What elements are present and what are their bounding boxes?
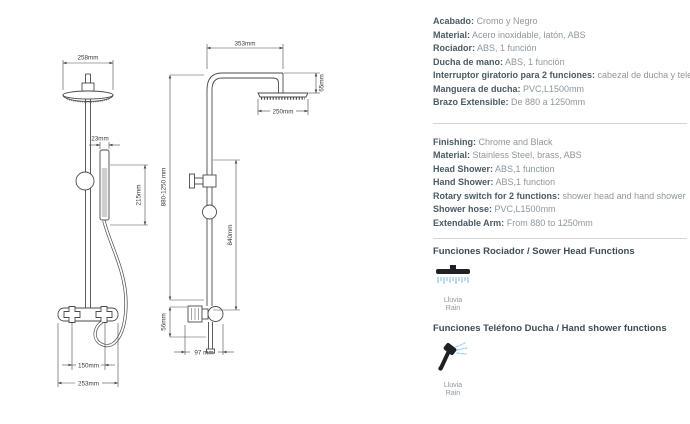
dim-head-diameter: 250mm xyxy=(273,109,294,116)
valve-ball-side xyxy=(208,307,223,322)
spec-label: Finishing: xyxy=(433,137,476,147)
spec-value: Stainless Steel, brass, ABS xyxy=(473,150,582,160)
spec-label: Shower hose: xyxy=(433,204,492,214)
rain-caption: Lluvia Rain xyxy=(433,297,473,312)
spec-row: Shower hose: PVC,L1500mm xyxy=(433,203,687,217)
spec-label: Ducha de mano: xyxy=(433,57,503,67)
dim-hand-shower-height: 215mm xyxy=(136,185,143,206)
spec-label: Rociador: xyxy=(433,43,475,53)
spec-value: ABS,1 function xyxy=(496,177,556,187)
dim-total-height: 880-1250 mm xyxy=(161,168,168,207)
spec-label: Manguera de ducha: xyxy=(433,84,521,94)
spec-value: shower head and hand shower xyxy=(563,191,686,201)
spec-label: Material: xyxy=(433,150,470,160)
spec-row: Extendable Arm: From 880 to 1250mm xyxy=(433,217,687,231)
spec-label: Material: xyxy=(433,30,470,40)
spec-row: Interruptor giratorio para 2 funciones: … xyxy=(433,69,687,83)
shower-head-disc xyxy=(63,91,113,99)
spec-row: Brazo Extensible: De 880 a 1250mm xyxy=(433,96,687,110)
shower-head-functions-section: Funciones Rociador / Sower Head Function… xyxy=(433,246,687,312)
hand-shower-holder xyxy=(76,172,94,190)
holder-collar xyxy=(203,175,216,187)
spec-value: PVC,L1500mm xyxy=(523,84,584,94)
hand-shower-functions-title: Funciones Teléfono Ducha / Hand shower f… xyxy=(433,323,687,334)
hand-shower-functions-section: Funciones Teléfono Ducha / Hand shower f… xyxy=(433,323,687,397)
divider xyxy=(433,238,687,239)
spec-value: PVC,L1500mm xyxy=(495,204,556,214)
dim-arm-length: 353mm xyxy=(235,41,256,48)
dim-valve-drop: 56mm xyxy=(161,313,168,331)
dim-inlet-spacing: 150mm xyxy=(78,362,99,369)
head-connector xyxy=(82,83,94,91)
spec-row: Manguera de ducha: PVC,L1500mm xyxy=(433,83,687,97)
spec-row: Rociador: ABS, 1 función xyxy=(433,42,687,56)
hand-shower-icon-svg xyxy=(436,342,470,372)
spec-label: Acabado: xyxy=(433,16,474,26)
dim-head-width: 258mm xyxy=(78,55,99,62)
dim-rail-length: 840mm xyxy=(227,225,234,246)
shower-head-side xyxy=(258,93,308,97)
front-view-drawing: 258mm 23mm 215mm 150mm 253mm xyxy=(40,45,180,395)
shower-arm xyxy=(207,73,283,90)
rain-caption: Lluvia Rain xyxy=(433,382,473,397)
holder-knob xyxy=(190,174,195,188)
spec-row: Hand Shower: ABS,1 function xyxy=(433,176,687,190)
spec-panel: Acabado: Cromo y Negro Material: Acero i… xyxy=(433,15,687,397)
ball-joint xyxy=(203,205,217,219)
spec-value: ABS, 1 función xyxy=(505,57,565,67)
shower-head-functions-title: Funciones Rociador / Sower Head Function… xyxy=(433,246,687,257)
spec-value: Cromo y Negro xyxy=(477,16,538,26)
spec-row: Rotary switch for 2 functions: shower he… xyxy=(433,190,687,204)
spec-label: Brazo Extensible: xyxy=(433,97,509,107)
spec-label: Hand Shower: xyxy=(433,177,494,187)
spec-label: Extendable Arm: xyxy=(433,218,504,228)
specs-spanish: Acabado: Cromo y Negro Material: Acero i… xyxy=(433,15,687,110)
dim-bottom-depth: 97 mm xyxy=(194,349,213,356)
rain-caption-en: Rain xyxy=(446,305,460,312)
spec-value: cabezal de ducha y teleducha xyxy=(598,70,690,80)
divider xyxy=(433,123,687,124)
dim-hand-shower-width: 23mm xyxy=(91,136,109,143)
hand-shower-icon xyxy=(433,342,473,377)
specs-english: Finishing: Chrome and Black Material: St… xyxy=(433,136,687,231)
dim-bottom-width: 253mm xyxy=(78,380,99,387)
side-view-drawing: 353mm 65mm 250mm 840mm 880-1250 mm 56mm … xyxy=(160,35,350,370)
spec-label: Head Shower: xyxy=(433,164,493,174)
rain-caption-es: Lluvia xyxy=(444,382,462,389)
dim-head-drop: 65mm xyxy=(319,74,326,92)
spec-row: Material: Acero inoxidable, latón, ABS xyxy=(433,29,687,43)
rain-shower-head-icon-svg xyxy=(433,265,473,287)
spec-row: Head Shower: ABS,1 function xyxy=(433,163,687,177)
spec-row: Material: Stainless Steel, brass, ABS xyxy=(433,149,687,163)
spec-label: Interruptor giratorio para 2 funciones: xyxy=(433,70,595,80)
spec-label: Rotary switch for 2 functions: xyxy=(433,191,560,201)
spec-value: From 880 to 1250mm xyxy=(507,218,593,228)
spec-value: Acero inoxidable, latón, ABS xyxy=(472,30,586,40)
spec-row: Finishing: Chrome and Black xyxy=(433,136,687,150)
rain-shower-head-icon xyxy=(433,265,473,292)
spec-value: ABS,1 function xyxy=(495,164,555,174)
spec-value: Chrome and Black xyxy=(479,137,553,147)
spec-value: ABS, 1 función xyxy=(477,43,537,53)
rain-caption-en: Rain xyxy=(446,390,460,397)
spec-value: De 880 a 1250mm xyxy=(511,97,585,107)
spec-row: Acabado: Cromo y Negro xyxy=(433,15,687,29)
spec-row: Ducha de mano: ABS, 1 función xyxy=(433,56,687,70)
rain-caption-es: Lluvia xyxy=(444,297,462,304)
